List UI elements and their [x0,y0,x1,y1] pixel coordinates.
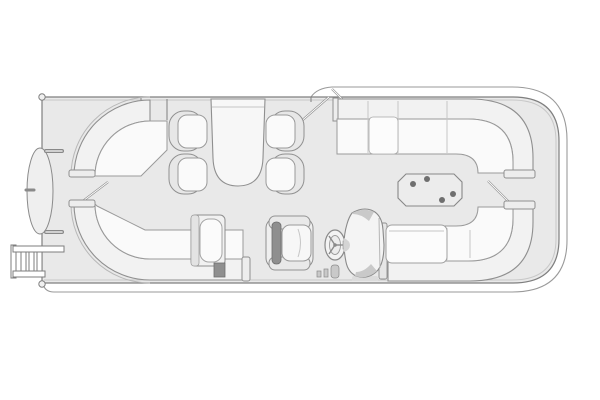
helm-console [344,209,385,281]
captains-chair [266,216,313,270]
dinette-seat [266,154,304,194]
cup-holder [450,191,456,197]
cup-holder [410,181,416,187]
cup-holder [439,197,445,203]
cocktail-table [398,174,462,206]
chair-cushion [282,225,311,261]
corner-fitting-top [39,94,45,100]
pontoon-floorplan-drawing: Pontoon boat deck floor plan, top view [0,0,600,400]
chair-backrest [272,222,281,264]
cup-holder [424,176,430,182]
corner-fitting-bottom [39,281,45,287]
sun-pad [386,225,447,263]
dinette-seat [169,154,207,194]
pontoon-floorplan-canvas: Pontoon boat deck floor plan, top view [0,0,600,400]
chaise-base-block [214,263,225,277]
lounge-cushion-block [369,117,398,154]
dinette-seat [266,111,304,151]
dinette-seat [169,111,207,151]
dinette-table [211,99,265,186]
